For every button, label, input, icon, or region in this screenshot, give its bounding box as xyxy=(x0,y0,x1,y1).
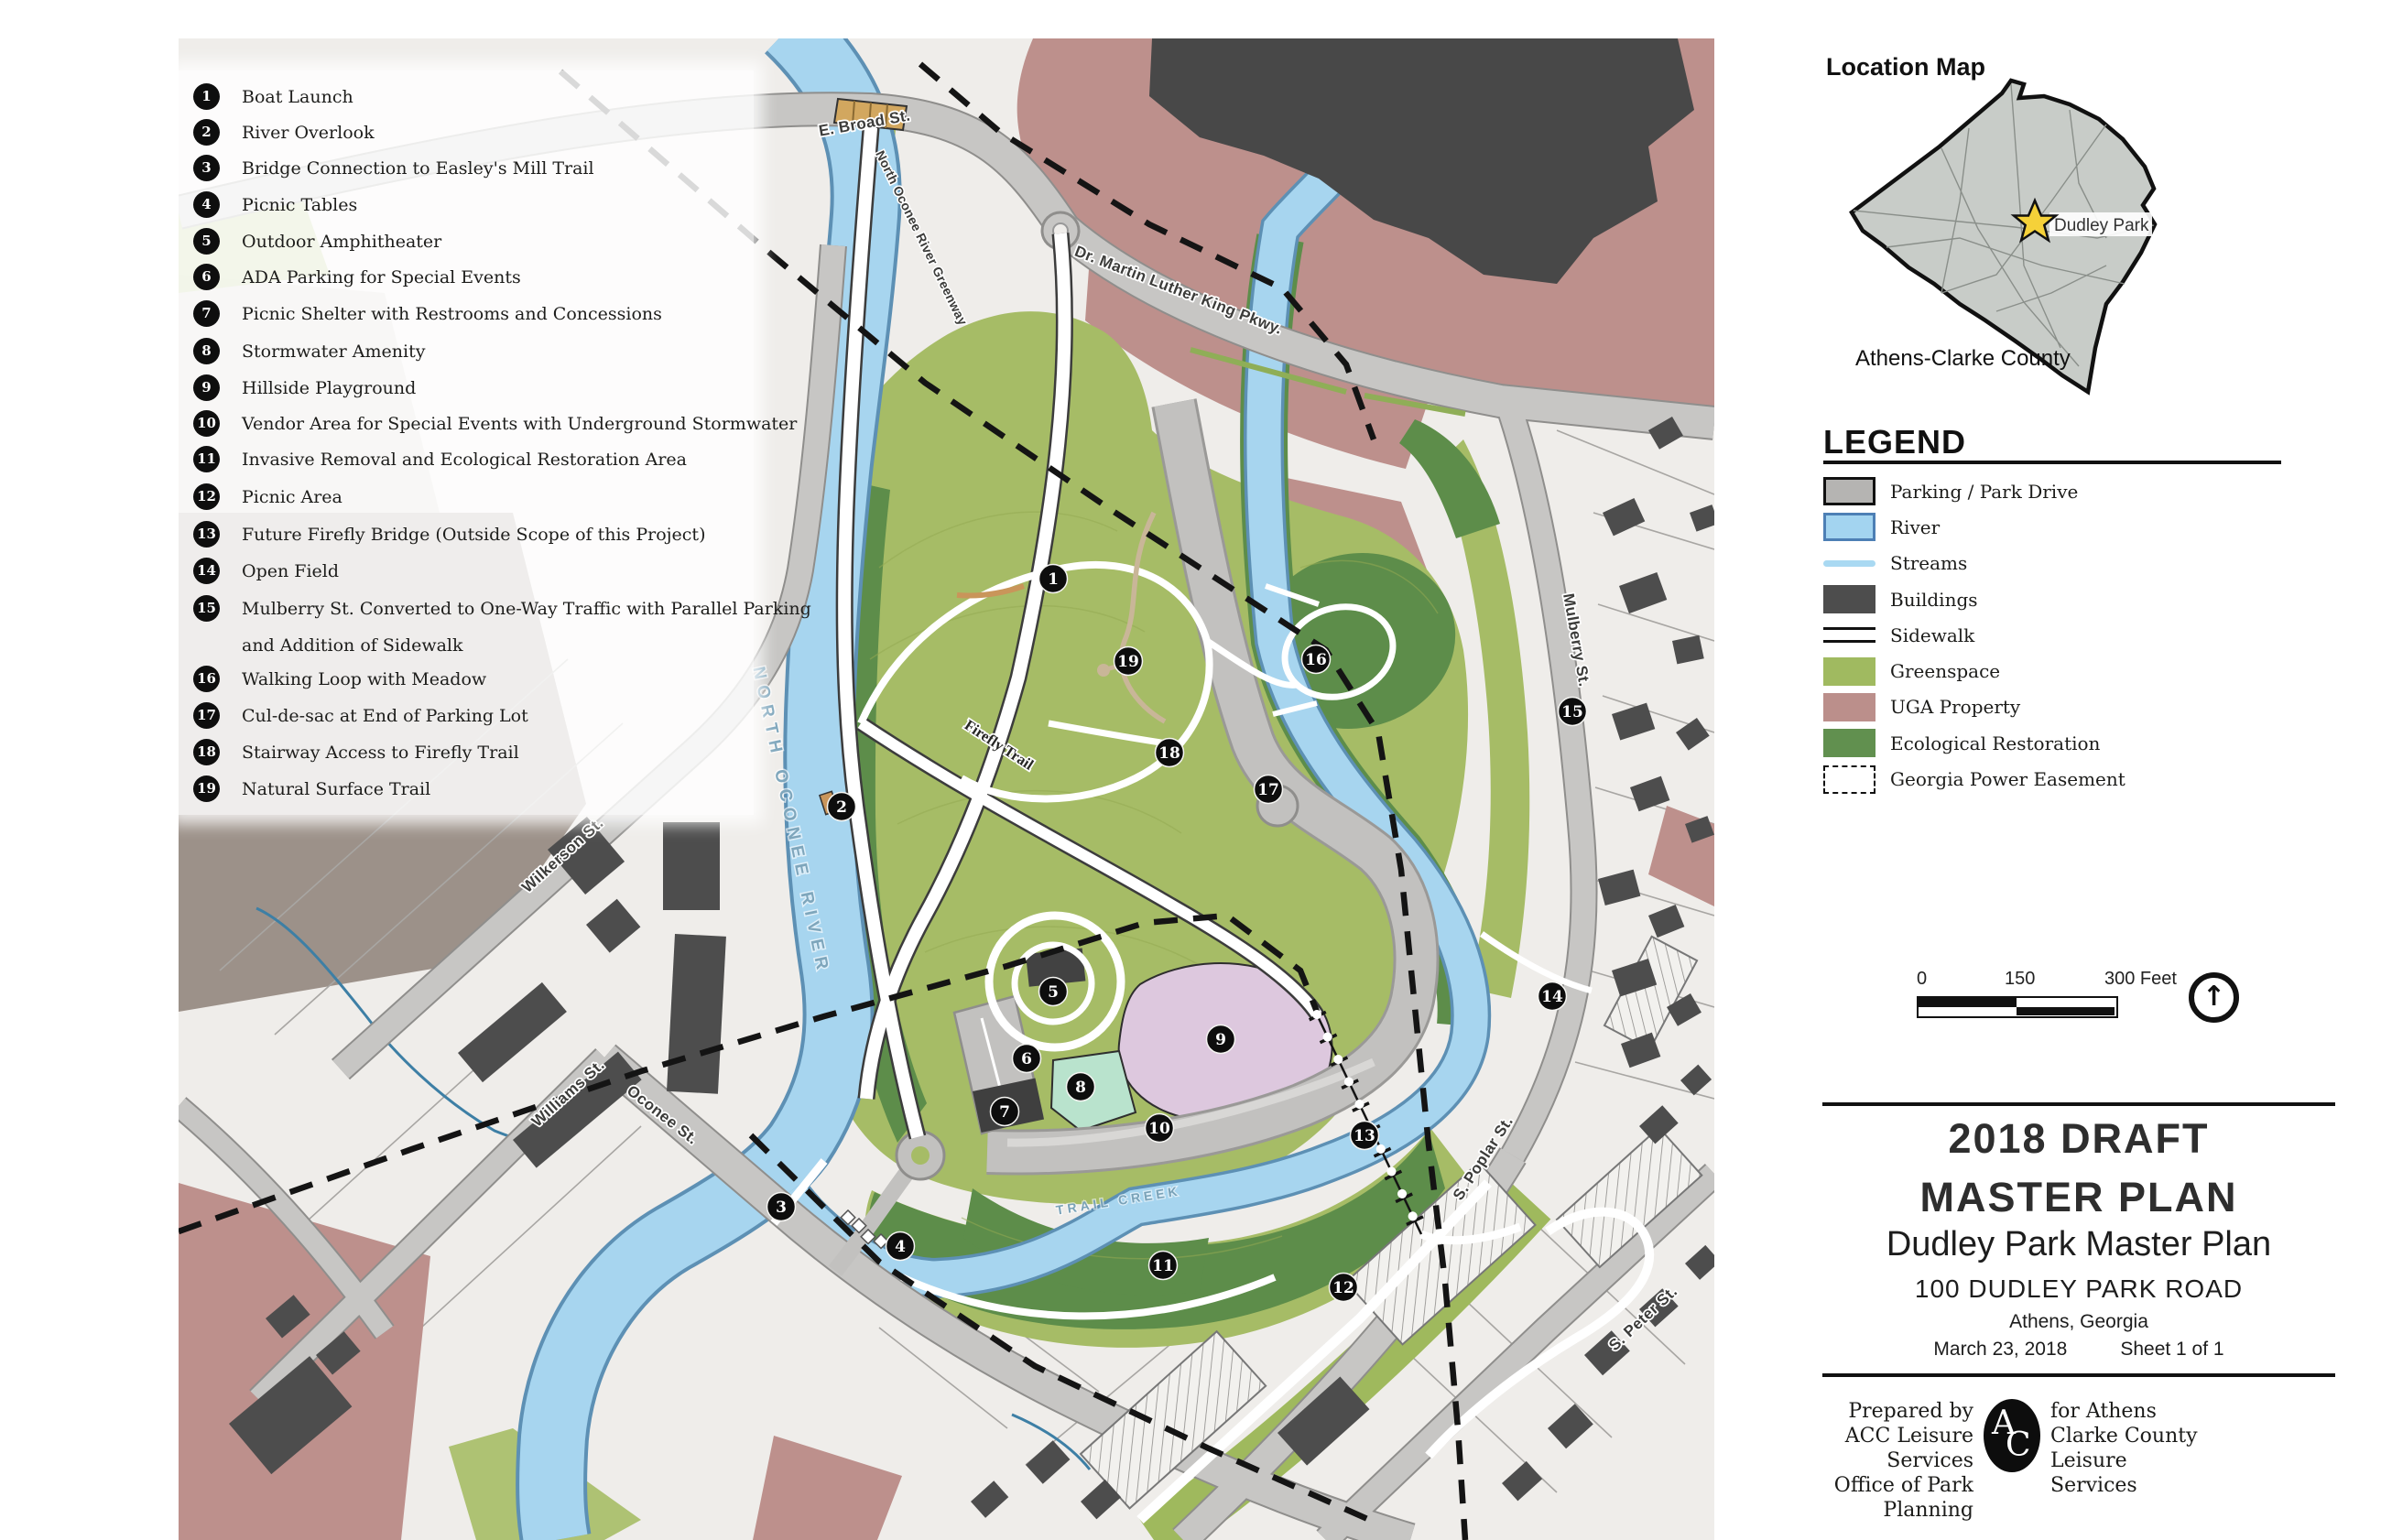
feature-label: Future Firefly Bridge (Outside Scope of … xyxy=(242,524,705,546)
feature-label: Stormwater Amenity xyxy=(242,341,425,363)
legend-label: UGA Property xyxy=(1890,696,2020,718)
feature-item-12: 12Picnic Area xyxy=(193,483,342,510)
map-marker-14: 14 xyxy=(1538,982,1567,1011)
acc-logo-icon: AC xyxy=(1984,1399,2040,1472)
map-marker-7: 7 xyxy=(991,1098,1019,1126)
feature-item-2: 2River Overlook xyxy=(193,119,375,146)
feature-item-17: 17Cul-de-sac at End of Parking Lot xyxy=(193,702,528,729)
title-date-sheet: March 23, 2018Sheet 1 of 1 xyxy=(1822,1339,2335,1361)
feature-item-16: 16Walking Loop with Meadow xyxy=(193,666,486,692)
map-marker-9: 9 xyxy=(1207,1025,1235,1054)
feature-label: Stairway Access to Firefly Trail xyxy=(242,742,519,764)
feature-number-badge: 11 xyxy=(193,446,220,472)
svg-text:9: 9 xyxy=(1215,1031,1226,1049)
feature-number-badge: 19 xyxy=(193,775,220,802)
map-marker-3: 3 xyxy=(767,1193,796,1221)
legend-label: Greenspace xyxy=(1890,660,2000,682)
scale-150: 150 xyxy=(2005,969,2035,990)
legend-swatch-icon xyxy=(1823,477,1875,505)
feature-number-badge: 8 xyxy=(193,338,220,364)
legend-swatch-icon xyxy=(1823,585,1875,613)
feature-number-badge: 2 xyxy=(193,119,220,146)
svg-text:13: 13 xyxy=(1354,1127,1375,1145)
feature-number-badge: 9 xyxy=(193,374,220,401)
legend-label: Ecological Restoration xyxy=(1890,732,2100,754)
svg-text:16: 16 xyxy=(1305,651,1327,669)
feature-number-badge: 6 xyxy=(193,264,220,290)
feature-item-5: 5Outdoor Amphitheater xyxy=(193,228,441,255)
county-label: Athens-Clarke County xyxy=(1855,346,2071,372)
feature-item-8: 8Stormwater Amenity xyxy=(193,338,425,364)
feature-item-19: 19Natural Surface Trail xyxy=(193,775,430,802)
feature-label: Outdoor Amphitheater xyxy=(242,231,441,253)
map-marker-5: 5 xyxy=(1039,978,1068,1006)
feature-item-4: 4Picnic Tables xyxy=(193,191,357,218)
feature-item-14: 14Open Field xyxy=(193,558,339,584)
feature-item-1: 1Boat Launch xyxy=(193,83,353,110)
map-marker-19: 19 xyxy=(1114,647,1143,676)
feature-label: Bridge Connection to Easley's Mill Trail xyxy=(242,157,594,179)
feature-item-3: 3Bridge Connection to Easley's Mill Trai… xyxy=(193,155,594,181)
legend-item: Streams xyxy=(1823,546,2126,581)
legend-item: Buildings xyxy=(1823,581,2126,617)
feature-label: Open Field xyxy=(242,560,339,582)
svg-text:12: 12 xyxy=(1332,1279,1354,1297)
svg-text:19: 19 xyxy=(1117,653,1139,671)
plan-date: March 23, 2018 xyxy=(1933,1339,2067,1361)
legend-item: River xyxy=(1823,509,2126,545)
feature-number-badge: 5 xyxy=(193,228,220,255)
svg-text:4: 4 xyxy=(895,1238,906,1256)
svg-text:17: 17 xyxy=(1257,781,1279,799)
feature-label: ADA Parking for Special Events xyxy=(242,266,521,288)
title-address: 100 DUDLEY PARK ROAD xyxy=(1822,1274,2335,1304)
legend-item: Sidewalk xyxy=(1823,617,2126,653)
svg-text:7: 7 xyxy=(999,1103,1010,1122)
svg-text:8: 8 xyxy=(1075,1079,1086,1097)
features-list-panel: 1Boat Launch2River Overlook3Bridge Conne… xyxy=(179,70,754,815)
star-label: Dudley Park xyxy=(2054,216,2149,235)
feature-label: River Overlook xyxy=(242,122,375,144)
feature-number-badge: 18 xyxy=(193,739,220,765)
credits-block: Prepared byACC Leisure ServicesOffice of… xyxy=(1790,1399,2212,1523)
title-park-name: Dudley Park Master Plan xyxy=(1822,1225,2335,1264)
feature-number-badge: 15 xyxy=(193,595,220,622)
scale-bar: 0 150 300 Feet xyxy=(1917,969,2136,1018)
legend-rule xyxy=(1823,461,2281,464)
scale-300: 300 Feet xyxy=(2104,969,2177,990)
feature-number-badge: 13 xyxy=(193,521,220,548)
sheet-number: Sheet 1 of 1 xyxy=(2120,1339,2223,1361)
feature-number-badge: 12 xyxy=(193,483,220,510)
legend-swatch-icon xyxy=(1823,729,1875,757)
feature-item-18: 18Stairway Access to Firefly Trail xyxy=(193,739,519,765)
feature-number-badge: 3 xyxy=(193,155,220,181)
map-marker-6: 6 xyxy=(1013,1045,1041,1073)
feature-label: Walking Loop with Meadow xyxy=(242,668,486,690)
svg-text:14: 14 xyxy=(1541,988,1563,1006)
feature-label: Vendor Area for Special Events with Unde… xyxy=(242,413,797,435)
legend-item: Greenspace xyxy=(1823,653,2126,689)
feature-number-badge: 14 xyxy=(193,558,220,584)
map-marker-4: 4 xyxy=(886,1232,915,1261)
feature-number-badge: 1 xyxy=(193,83,220,110)
feature-number-badge: 17 xyxy=(193,702,220,729)
title-draft: 2018 DRAFT xyxy=(1822,1115,2335,1163)
feature-label: Invasive Removal and Ecological Restorat… xyxy=(242,449,687,471)
svg-text:11: 11 xyxy=(1152,1257,1174,1275)
scale-0: 0 xyxy=(1917,969,1927,990)
feature-label: Picnic Tables xyxy=(242,194,357,216)
legend: Parking / Park DriveRiverStreamsBuilding… xyxy=(1823,473,2126,797)
legend-swatch-icon xyxy=(1823,513,1875,541)
legend-swatch-icon xyxy=(1823,657,1875,686)
map-marker-16: 16 xyxy=(1302,645,1331,674)
legend-label: Parking / Park Drive xyxy=(1890,481,2078,503)
map-marker-8: 8 xyxy=(1067,1073,1095,1101)
legend-swatch-icon xyxy=(1823,765,1875,794)
title-master-plan: MASTER PLAN xyxy=(1822,1174,2335,1221)
feature-number-badge: 16 xyxy=(193,666,220,692)
map-marker-17: 17 xyxy=(1255,775,1283,804)
legend-item: Ecological Restoration xyxy=(1823,725,2126,761)
map-marker-12: 12 xyxy=(1330,1274,1358,1302)
map-marker-18: 18 xyxy=(1156,739,1184,767)
svg-text:2: 2 xyxy=(836,798,847,817)
legend-swatch-icon xyxy=(1823,560,1875,567)
map-marker-13: 13 xyxy=(1351,1122,1379,1150)
legend-item: Georgia Power Easement xyxy=(1823,761,2126,797)
legend-item: UGA Property xyxy=(1823,689,2126,725)
feature-label: Picnic Area xyxy=(242,486,342,508)
feature-label: Cul-de-sac at End of Parking Lot xyxy=(242,705,528,727)
feature-item-10: 10Vendor Area for Special Events with Un… xyxy=(193,410,797,437)
feature-label: Hillside Playground xyxy=(242,377,416,399)
feature-item-9: 9Hillside Playground xyxy=(193,374,416,401)
legend-label: Streams xyxy=(1890,552,1967,574)
feature-number-badge: 10 xyxy=(193,410,220,437)
legend-label: Georgia Power Easement xyxy=(1890,768,2126,790)
feature-label: Picnic Shelter with Restrooms and Conces… xyxy=(242,303,662,325)
title-block-rule-top xyxy=(1822,1102,2335,1106)
north-arrow-icon: ↑ xyxy=(2189,972,2239,1023)
credits-prepared-by: Prepared byACC Leisure ServicesOffice of… xyxy=(1790,1399,1973,1523)
map-marker-11: 11 xyxy=(1149,1252,1178,1280)
map-marker-15: 15 xyxy=(1559,698,1587,726)
feature-item-13: 13Future Firefly Bridge (Outside Scope o… xyxy=(193,521,705,548)
svg-text:5: 5 xyxy=(1048,983,1059,1002)
map-marker-10: 10 xyxy=(1146,1114,1174,1143)
title-city: Athens, Georgia xyxy=(1822,1311,2335,1333)
legend-item: Parking / Park Drive xyxy=(1823,473,2126,509)
legend-label: Sidewalk xyxy=(1890,624,1974,646)
map-marker-1: 1 xyxy=(1039,565,1068,593)
svg-text:10: 10 xyxy=(1148,1120,1170,1138)
legend-swatch-icon xyxy=(1823,693,1875,721)
feature-label: Natural Surface Trail xyxy=(242,778,430,800)
feature-number-badge: 4 xyxy=(193,191,220,218)
svg-text:18: 18 xyxy=(1158,744,1180,763)
legend-title: LEGEND xyxy=(1823,423,1966,461)
feature-number-badge: 7 xyxy=(193,300,220,327)
feature-item-7: 7Picnic Shelter with Restrooms and Conce… xyxy=(193,300,662,327)
svg-text:1: 1 xyxy=(1048,570,1059,589)
legend-swatch-icon xyxy=(1823,627,1875,643)
svg-text:15: 15 xyxy=(1561,703,1583,721)
feature-label: Mulberry St. Converted to One-Way Traffi… xyxy=(242,598,811,656)
svg-text:3: 3 xyxy=(776,1198,787,1217)
title-block-rule-bottom xyxy=(1822,1373,2335,1377)
feature-item-6: 6ADA Parking for Special Events xyxy=(193,264,521,290)
credits-for: for AthensClarke CountyLeisure Services xyxy=(2050,1399,2206,1498)
svg-text:6: 6 xyxy=(1021,1050,1032,1068)
feature-label: Boat Launch xyxy=(242,86,353,108)
feature-item-11: 11Invasive Removal and Ecological Restor… xyxy=(193,446,687,472)
legend-label: Buildings xyxy=(1890,589,1978,611)
feature-item-15: 15Mulberry St. Converted to One-Way Traf… xyxy=(193,595,811,656)
master-plan-sheet: { "features_list": { "items": [ {"num":"… xyxy=(0,0,2381,1540)
scale-bar-graphic xyxy=(1917,996,2118,1018)
map-marker-2: 2 xyxy=(828,793,856,821)
legend-label: River xyxy=(1890,516,1940,538)
